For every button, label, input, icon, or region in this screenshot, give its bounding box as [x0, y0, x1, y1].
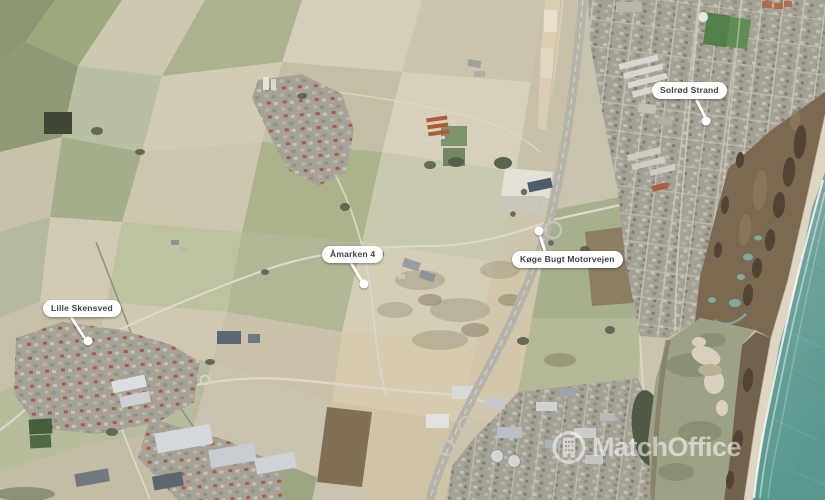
map-label-amarken-4[interactable]: Åmarken 4: [322, 246, 383, 263]
haze-overlay: [0, 0, 825, 500]
map-label-koge-bugt-motorvejen[interactable]: Køge Bugt Motorvejen: [512, 251, 623, 268]
map-label-solrod-strand[interactable]: Solrød Strand: [652, 82, 727, 99]
marker-dot-lille-skensved[interactable]: [84, 337, 93, 346]
satellite-map-image: [0, 0, 825, 500]
marker-dot-koge-bugt[interactable]: [535, 227, 544, 236]
map-screenshot: Solrød Strand Åmarken 4 Køge Bugt Motorv…: [0, 0, 825, 500]
marker-dot-solrod-strand[interactable]: [702, 117, 711, 126]
map-label-lille-skensved[interactable]: Lille Skensved: [43, 300, 121, 317]
marker-dot-amarken-4[interactable]: [360, 280, 369, 289]
